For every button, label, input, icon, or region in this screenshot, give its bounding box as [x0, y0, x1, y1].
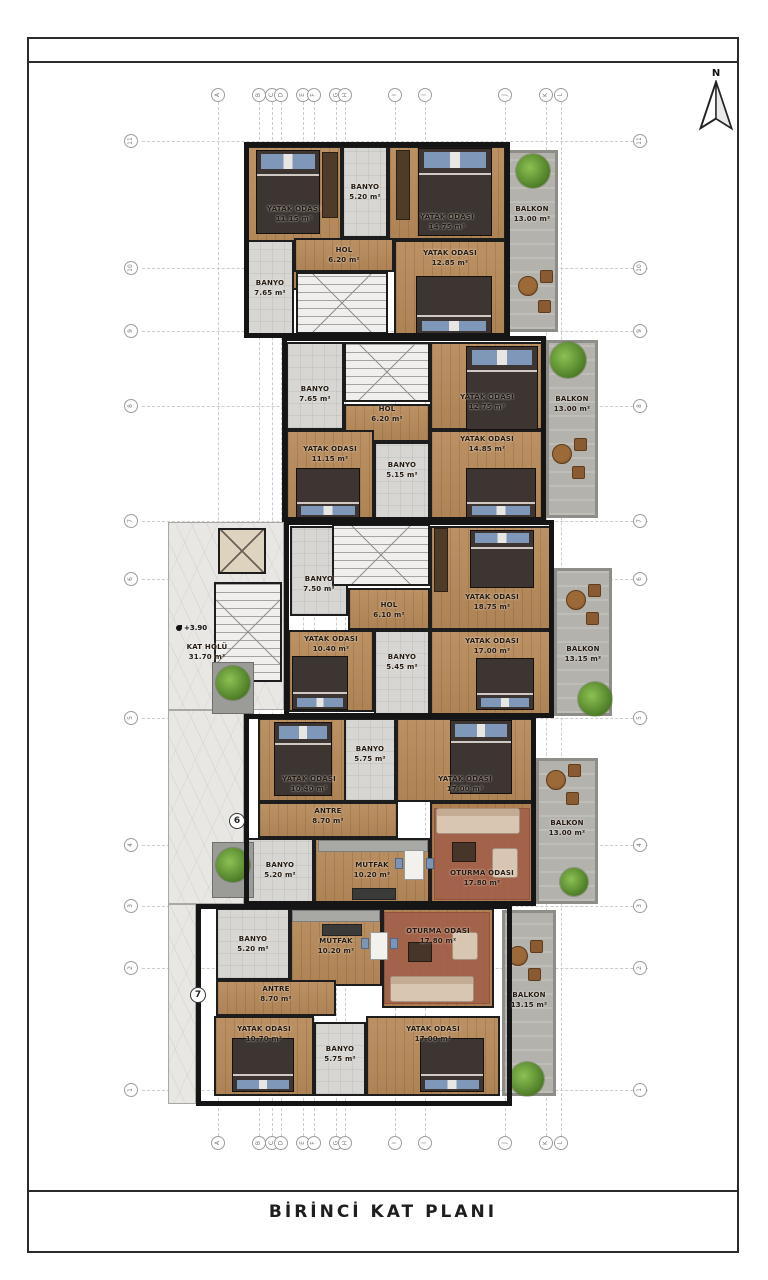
room-banyo — [314, 1022, 366, 1096]
grid-bubble-1: 1 — [124, 1083, 138, 1097]
grid-bubble-İ: İ — [418, 88, 432, 102]
grid-bubble-K: K — [539, 1136, 553, 1150]
grid-bubble-A: A — [211, 88, 225, 102]
room-banyo — [246, 838, 314, 904]
counterdark-symbol — [352, 888, 396, 900]
grid-bubble-I: I — [388, 88, 402, 102]
armchair-symbol — [492, 848, 518, 878]
plant-symbol — [516, 154, 550, 188]
grid-bubble-İ: İ — [418, 1136, 432, 1150]
room-banyo — [216, 908, 290, 980]
floor-plan-sheet: N AABBCCDDEEFFGGHHIIİİJJKKLL111110109988… — [0, 0, 768, 1280]
grid-bubble-9: 9 — [124, 324, 138, 338]
grid-bubble-F: F — [307, 1136, 321, 1150]
plant-symbol — [550, 342, 586, 378]
room-banyo — [344, 718, 396, 802]
grid-bubble-H: H — [338, 88, 352, 102]
grid-bubble-A: A — [211, 1136, 225, 1150]
grid-bubble-B: B — [252, 1136, 266, 1150]
grid-bubble-10: 10 — [633, 261, 647, 275]
grid-bubble-J: J — [498, 1136, 512, 1150]
stairs-symbol — [332, 524, 430, 586]
rtable-symbol — [546, 770, 566, 790]
room-banyo — [286, 342, 344, 430]
bed-symbol — [466, 468, 536, 518]
rtable-symbol — [508, 946, 528, 966]
coffee-symbol — [452, 842, 476, 862]
grid-bubble-D: D — [274, 88, 288, 102]
counter-symbol — [292, 910, 380, 922]
coffee-symbol — [408, 942, 432, 962]
bed-symbol — [418, 148, 492, 236]
bed-symbol — [476, 658, 534, 710]
chair-symbol — [538, 300, 551, 313]
bed-symbol — [466, 346, 538, 430]
rtable-symbol — [566, 590, 586, 610]
grid-bubble-4: 4 — [124, 838, 138, 852]
bed-symbol — [470, 530, 534, 588]
room-area — [168, 904, 196, 1104]
grid-bubble-D: D — [274, 1136, 288, 1150]
dining-symbol — [370, 932, 388, 960]
chair-symbol — [528, 968, 541, 981]
plant-symbol — [216, 848, 250, 882]
chair-symbol — [588, 584, 601, 597]
sofa-symbol — [436, 808, 520, 834]
room-banyo — [246, 240, 294, 336]
grid-bubble-7: 7 — [124, 514, 138, 528]
grid-bubble-5: 5 — [633, 711, 647, 725]
sofa-symbol — [390, 976, 474, 1002]
elevator-symbol — [218, 528, 266, 574]
grid-bubble-F: F — [307, 88, 321, 102]
bluechair-symbol — [361, 938, 369, 949]
grid-bubble-K: K — [539, 88, 553, 102]
room-antre — [216, 980, 336, 1016]
bed-symbol — [292, 656, 348, 710]
grid-bubble-J: J — [498, 88, 512, 102]
grid-bubble-9: 9 — [633, 324, 647, 338]
closet-symbol — [322, 152, 338, 218]
plan-layer: AABBCCDDEEFFGGHHIIİİJJKKLL11111010998877… — [0, 0, 768, 1280]
grid-line-row-3 — [142, 906, 648, 907]
grid-bubble-B: B — [252, 88, 266, 102]
bed-symbol — [274, 722, 332, 796]
grid-bubble-8: 8 — [124, 399, 138, 413]
counterdark-symbol — [322, 924, 362, 936]
room-hol — [294, 238, 394, 272]
level-marker-icon — [176, 625, 182, 631]
chair-symbol — [566, 792, 579, 805]
armchair-symbol — [452, 932, 478, 960]
chair-symbol — [572, 466, 585, 479]
grid-bubble-2: 2 — [124, 961, 138, 975]
grid-bubble-5: 5 — [124, 711, 138, 725]
bed-symbol — [416, 276, 492, 334]
grid-bubble-H: H — [338, 1136, 352, 1150]
chair-symbol — [540, 270, 553, 283]
rtable-symbol — [518, 276, 538, 296]
room-antre — [258, 802, 398, 838]
closet-symbol — [396, 150, 410, 220]
bluechair-symbol — [426, 858, 434, 869]
bluechair-symbol — [390, 938, 398, 949]
bluechair-symbol — [395, 858, 403, 869]
room-hol — [348, 588, 430, 630]
bed-symbol — [256, 150, 320, 234]
grid-bubble-6: 6 — [124, 572, 138, 586]
stairs-symbol — [344, 342, 430, 402]
plant-symbol — [560, 868, 588, 896]
unit-badge-6: 6 — [229, 813, 245, 829]
closet-symbol — [434, 528, 448, 592]
grid-bubble-L: L — [554, 88, 568, 102]
grid-bubble-8: 8 — [633, 399, 647, 413]
grid-bubble-3: 3 — [633, 899, 647, 913]
rtable-symbol — [552, 444, 572, 464]
chair-symbol — [586, 612, 599, 625]
bed-symbol — [420, 1038, 484, 1092]
bed-symbol — [450, 720, 512, 794]
grid-bubble-6: 6 — [633, 572, 647, 586]
bed-symbol — [296, 468, 360, 518]
chair-symbol — [530, 940, 543, 953]
room-banyo — [342, 146, 388, 238]
room-banyo — [374, 442, 430, 520]
stairs-symbol — [296, 272, 388, 334]
bed-symbol — [232, 1038, 294, 1092]
grid-line-row-11 — [142, 141, 648, 142]
grid-bubble-10: 10 — [124, 261, 138, 275]
page-title: BİRİNCİ KAT PLANI — [27, 1202, 739, 1222]
level-marker: +3.90 — [176, 624, 207, 632]
level-marker-value: +3.90 — [184, 624, 207, 632]
grid-bubble-2: 2 — [633, 961, 647, 975]
grid-bubble-I: I — [388, 1136, 402, 1150]
room-banyo — [374, 630, 430, 716]
grid-bubble-1: 1 — [633, 1083, 647, 1097]
plant-symbol — [578, 682, 612, 716]
plant-symbol — [510, 1062, 544, 1096]
chair-symbol — [568, 764, 581, 777]
unit-badge-7: 7 — [190, 987, 206, 1003]
grid-bubble-3: 3 — [124, 899, 138, 913]
plant-symbol — [216, 666, 250, 700]
chair-symbol — [574, 438, 587, 451]
grid-bubble-11: 11 — [633, 134, 647, 148]
grid-bubble-7: 7 — [633, 514, 647, 528]
grid-bubble-L: L — [554, 1136, 568, 1150]
dining-symbol — [404, 850, 424, 880]
grid-bubble-4: 4 — [633, 838, 647, 852]
grid-bubble-11: 11 — [124, 134, 138, 148]
